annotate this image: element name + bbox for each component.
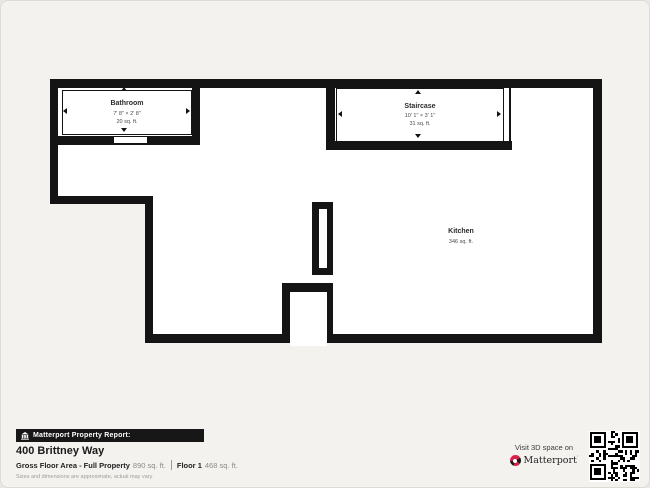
wall-bathroom-right [192, 79, 200, 145]
visit-3d-label: Visit 3D space on [503, 443, 585, 452]
bathroom-name: Bathroom [110, 99, 143, 110]
wall-left-jog [50, 196, 153, 204]
report-title-bar: Matterport Property Report: [16, 429, 204, 442]
property-address: 400 Brittney Way [16, 445, 104, 457]
bathroom-arrow-left-icon [63, 108, 67, 114]
bathroom-door [113, 136, 148, 144]
floor-label: Floor 1 [177, 461, 202, 470]
kitchen-label: Kitchen 346 sq. ft. [421, 227, 501, 246]
visit-3d-block: Visit 3D space on Matterport’ [503, 443, 585, 466]
matterport-brand-row: Matterport’ [503, 455, 585, 466]
partition-slot [319, 209, 327, 268]
report-title: Matterport Property Report: [33, 432, 131, 439]
staircase-area: 31 sq. ft. [409, 120, 430, 128]
staircase-right-edge [509, 88, 511, 145]
floor-area-info: Gross Floor Area - Full Property 890 sq.… [16, 460, 238, 470]
staircase-arrow-up-icon [415, 90, 421, 94]
entry-right-wall [327, 283, 333, 343]
bathroom-arrow-right-icon [186, 108, 190, 114]
matterport-logo-icon [510, 455, 521, 466]
staircase-dimensions: 10' 1" × 3' 1" [405, 112, 436, 120]
entry-left-wall [282, 283, 290, 343]
bathroom-area: 20 sq. ft. [116, 118, 137, 126]
divider [171, 460, 172, 470]
property-report-page: Bathroom 7' 8" × 2' 8" 20 sq. ft. Stairc… [0, 0, 650, 488]
wall-bottom-left [145, 334, 290, 343]
kitchen-name: Kitchen [421, 227, 501, 238]
wall-staircase-bottom [326, 141, 512, 150]
staircase-arrow-right-icon [497, 111, 501, 117]
bathroom-arrow-down-icon [121, 128, 127, 132]
qr-finder-top-right [622, 432, 638, 448]
wall-left-lower [145, 196, 153, 343]
gross-floor-area-value: 890 sq. ft. [133, 461, 166, 470]
matterport-wordmark: Matterport’ [524, 455, 579, 466]
wall-staircase-left [326, 79, 335, 150]
qr-code [589, 431, 640, 482]
staircase-arrow-left-icon [338, 111, 342, 117]
wall-bottom-right [327, 334, 602, 343]
bathroom-dimensions: 7' 8" × 2' 8" [113, 110, 141, 118]
wall-right [593, 79, 602, 343]
floor-value: 468 sq. ft. [205, 461, 238, 470]
kitchen-area: 346 sq. ft. [421, 238, 501, 246]
staircase-arrow-down-icon [415, 134, 421, 138]
bathroom-arrow-up-icon [121, 87, 127, 91]
bathroom-label-box: Bathroom 7' 8" × 2' 8" 20 sq. ft. [62, 90, 192, 135]
disclaimer-text: Sizes and dimensions are approximate, ac… [16, 474, 152, 480]
qr-finder-top-left [590, 432, 606, 448]
staircase-name: Staircase [404, 102, 435, 113]
entry-door-opening [290, 292, 327, 346]
floor-fill-lower [145, 196, 602, 343]
building-icon [21, 432, 29, 440]
qr-finder-bottom-left [590, 464, 606, 480]
gross-floor-area-label: Gross Floor Area - Full Property [16, 461, 130, 470]
